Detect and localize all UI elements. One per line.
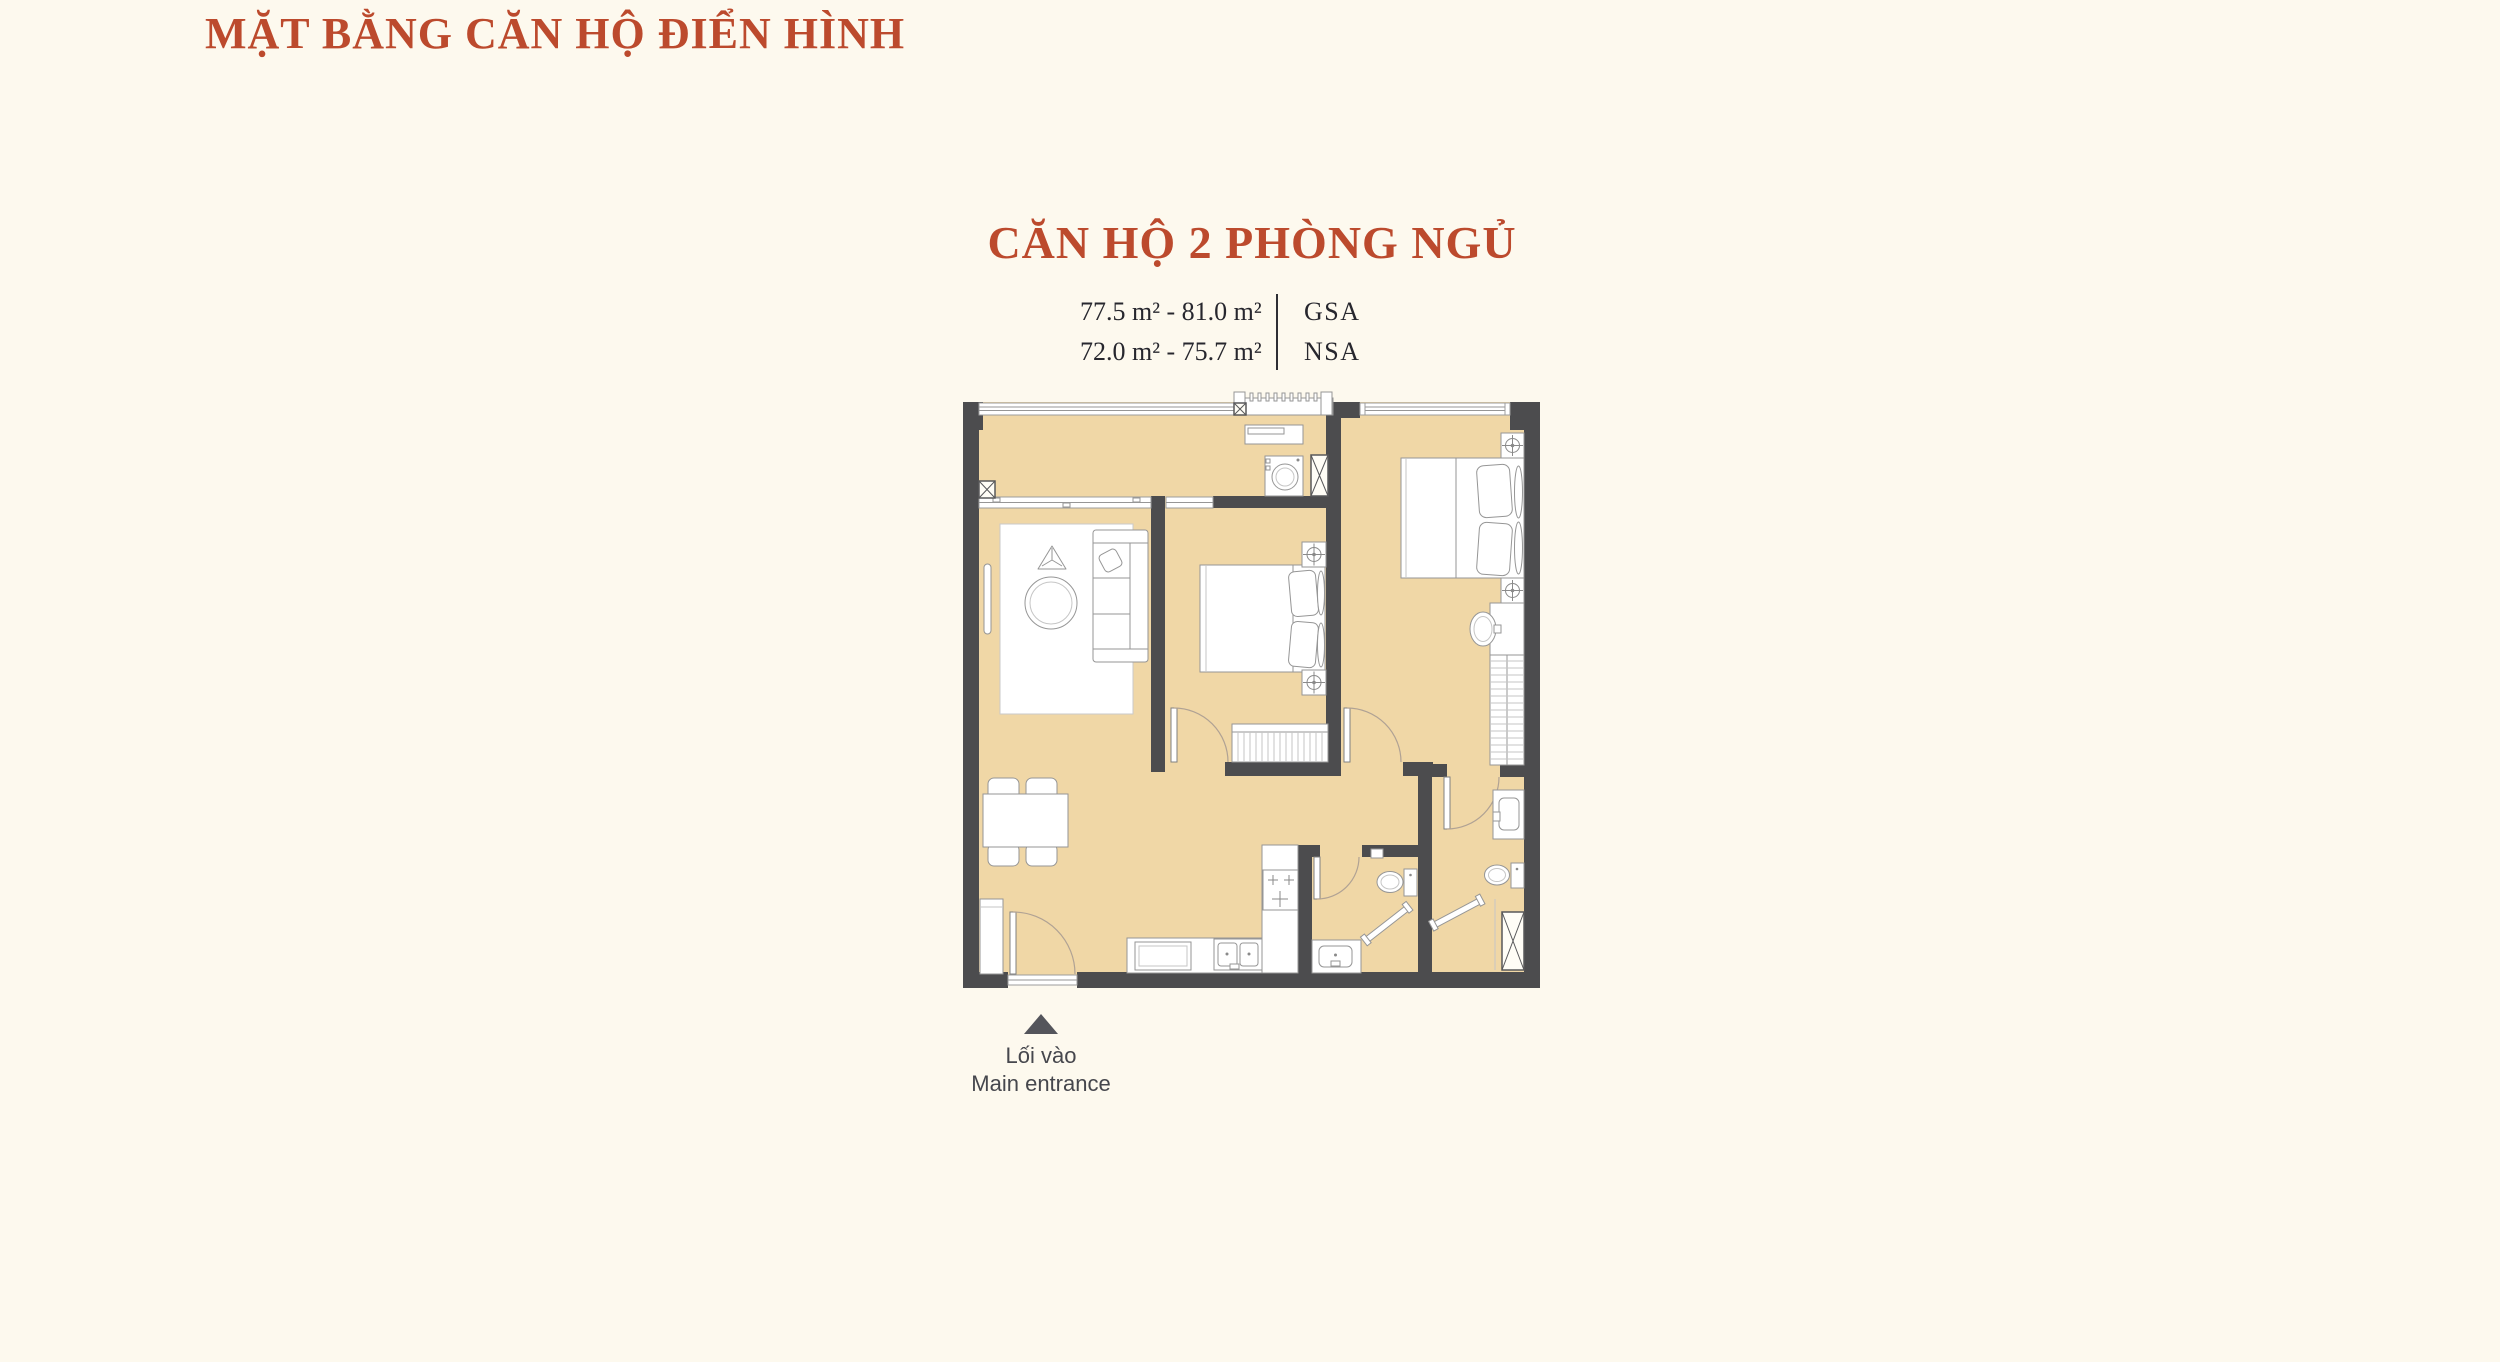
page: MẶT BẰNG CĂN HỘ ĐIỂN HÌNH CĂN HỘ 2 PHÒNG…	[0, 0, 2500, 1362]
ac-vent-icon	[1302, 670, 1326, 695]
wardrobe-icon	[1232, 724, 1328, 762]
ac-vent-icon	[1501, 433, 1524, 458]
ac-ledge-icon	[1234, 392, 1333, 415]
washing-machine-icon	[1265, 456, 1303, 496]
area-gsa-label: GSA	[1304, 292, 1361, 332]
entrance-label-en: Main entrance	[941, 1070, 1141, 1098]
ac-vent-icon	[1501, 578, 1524, 603]
main-entrance-marker: Lối vào Main entrance	[941, 1014, 1141, 1098]
bed-icon	[1200, 565, 1325, 672]
stove-icon	[1263, 870, 1298, 910]
kitchen-sink-icon	[1214, 939, 1262, 970]
area-divider	[1276, 294, 1278, 370]
entry-cabinet-icon	[980, 899, 1003, 974]
shower-control-icon	[1371, 849, 1383, 858]
entrance-label-vi: Lối vào	[941, 1042, 1141, 1070]
coffee-table-icon	[1025, 577, 1077, 629]
tv-icon	[984, 564, 991, 634]
bed-icon	[1401, 458, 1524, 578]
area-labels: GSA NSA	[1304, 292, 1361, 372]
dining-set	[983, 778, 1068, 866]
area-values: 77.5 m² - 81.0 m² 72.0 m² - 75.7 m²	[1080, 292, 1256, 372]
ac-vent-icon	[1302, 542, 1326, 567]
bathroom-sink-icon	[1493, 790, 1524, 839]
area-gsa-value: 77.5 m² - 81.0 m²	[1080, 292, 1256, 332]
page-title: MẶT BẰNG CĂN HỘ ĐIỂN HÌNH	[205, 8, 905, 59]
floorplan-svg	[963, 388, 1541, 990]
area-nsa-label: NSA	[1304, 332, 1361, 372]
wardrobe-icon	[1490, 655, 1524, 765]
area-nsa-value: 72.0 m² - 75.7 m²	[1080, 332, 1256, 372]
bathroom-sink-icon	[1312, 940, 1361, 973]
sofa-icon	[1093, 530, 1148, 662]
area-block: 77.5 m² - 81.0 m² 72.0 m² - 75.7 m² GSA …	[1080, 292, 1361, 372]
console-table-icon	[1245, 425, 1303, 444]
unit-name: CĂN HỘ 2 PHÒNG NGỦ	[952, 216, 1552, 269]
dining-table-icon	[983, 794, 1068, 847]
floorplan	[963, 388, 1541, 990]
up-triangle-icon	[1024, 1014, 1058, 1034]
living-room	[984, 524, 1148, 714]
